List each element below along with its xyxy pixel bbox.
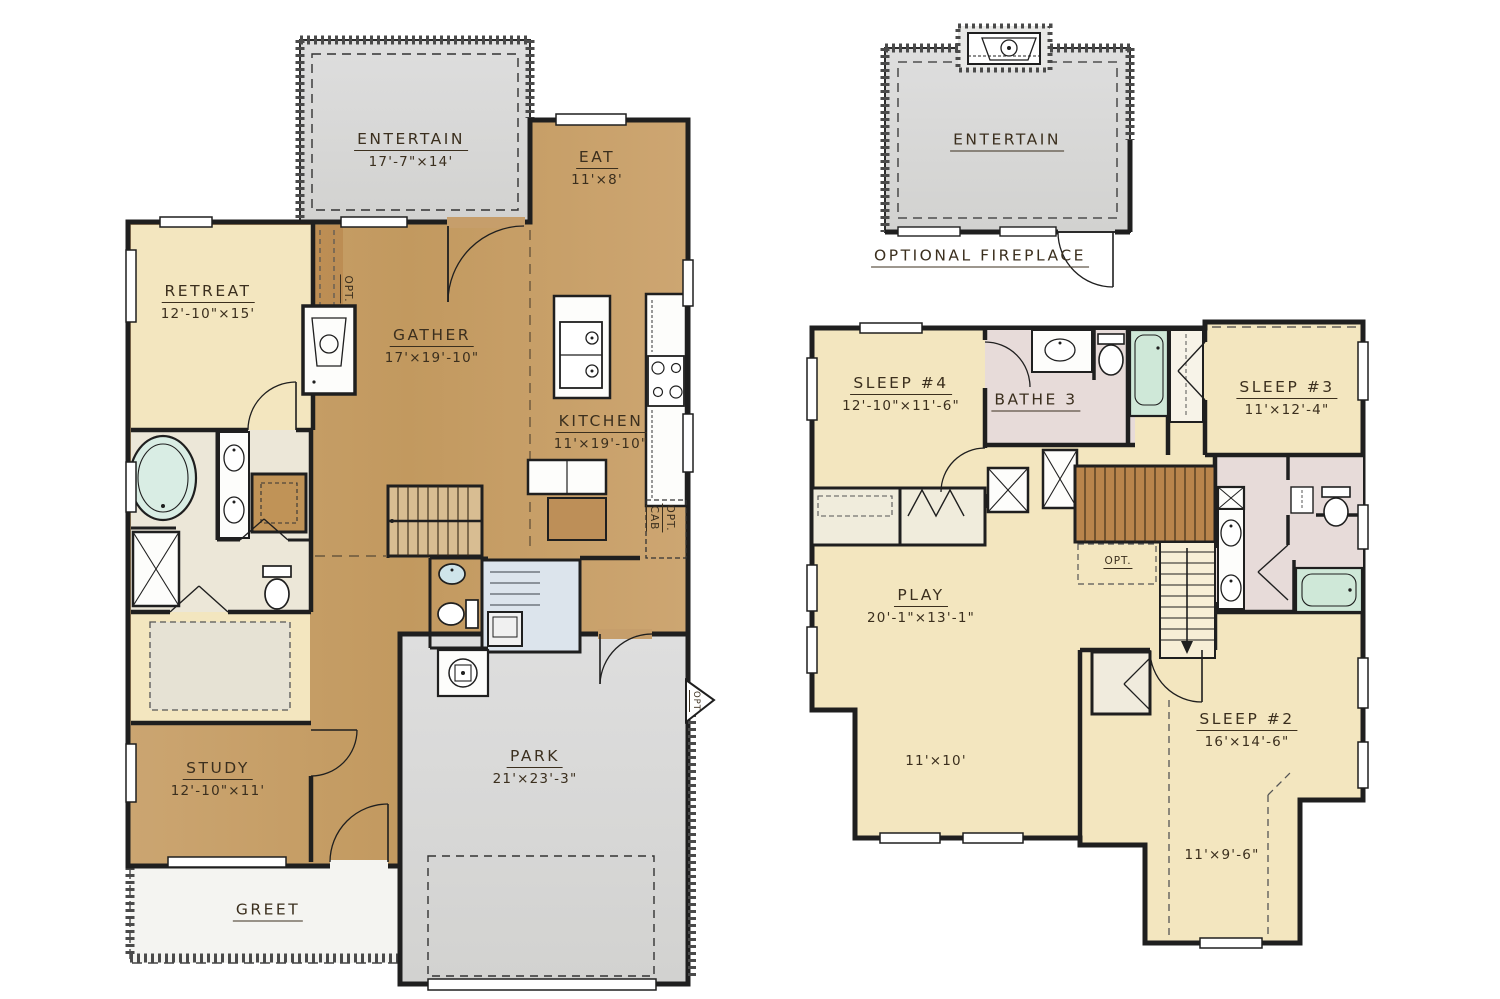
note-opt-cab: OPT. CAB — [646, 503, 676, 532]
stove-icon — [646, 294, 686, 506]
room-label-eat: EAT 11'×8' — [571, 148, 623, 188]
hall-linen-icon — [1170, 330, 1203, 422]
floor-plan-drawing — [0, 0, 1500, 999]
powder-toilet-icon — [438, 600, 478, 628]
shower-icon — [133, 532, 179, 606]
kitchen-island-sink-icon — [554, 296, 610, 398]
note-opt-door: OPT — [689, 690, 701, 712]
room-label-gather: GATHER 17'×19'-10" — [385, 326, 480, 366]
caption-optional-fireplace: OPTIONAL FIREPLACE — [871, 247, 1089, 268]
room-label-park: PARK 21'×23'-3" — [493, 747, 578, 787]
room-label-study: STUDY 12'-10"×11' — [171, 759, 266, 799]
room-label-sleep2: SLEEP #2 16'×14'-6" — [1196, 710, 1297, 750]
room-label-bathe3: BATHE 3 — [991, 391, 1080, 412]
room-label-sleep4: SLEEP #4 12'-10"×11'-6" — [842, 374, 960, 414]
bathe2-vanity-icon — [1218, 487, 1244, 609]
closet-strip — [812, 488, 985, 545]
bathe3-toilet-icon — [1098, 334, 1124, 375]
cabinet-icon — [548, 498, 606, 540]
room-label-play: PLAY 20'-1"×13'-1" — [867, 586, 975, 626]
stairs-up-icon — [388, 486, 482, 556]
toilet-icon — [263, 566, 291, 609]
optional-fireplace-icon — [958, 26, 1050, 70]
room-label-kitchen: KITCHEN 11'×19'-10" — [554, 412, 649, 452]
powder-sink-icon — [439, 564, 465, 584]
floor-plan-canvas: ENTERTAIN 17'-7"×14' EAT 11'×8' RETREAT … — [0, 0, 1500, 999]
dim-label-sleep2-alcove: 11'×9'-6" — [1185, 847, 1260, 863]
first-floor-plan — [126, 40, 714, 990]
fireplace-icon — [303, 306, 355, 394]
bathtub-icon — [130, 436, 196, 520]
note-opt-media: OPT. — [340, 274, 354, 303]
bathe2-tub-icon — [1296, 568, 1362, 612]
bathe3-tub-icon — [1130, 330, 1168, 416]
room-label-entertain-sf: ENTERTAIN — [950, 131, 1064, 152]
double-vanity-icon — [219, 432, 249, 538]
room-label-entertain-ff: ENTERTAIN 17'-7"×14' — [354, 130, 468, 170]
note-opt-stairs: OPT. — [1103, 555, 1132, 569]
room-label-retreat: RETREAT 12'-10"×15' — [161, 282, 256, 322]
room-label-sleep3: SLEEP #3 11'×12'-4" — [1236, 378, 1337, 418]
bathe3-vanity-icon — [1032, 330, 1092, 372]
sleep2-closet — [1092, 652, 1150, 714]
water-heater-icon — [438, 650, 488, 696]
room-label-greet: GREET — [233, 901, 303, 922]
second-floor-plan — [807, 26, 1368, 948]
dim-label-play-alcove: 11'×10' — [905, 753, 967, 769]
